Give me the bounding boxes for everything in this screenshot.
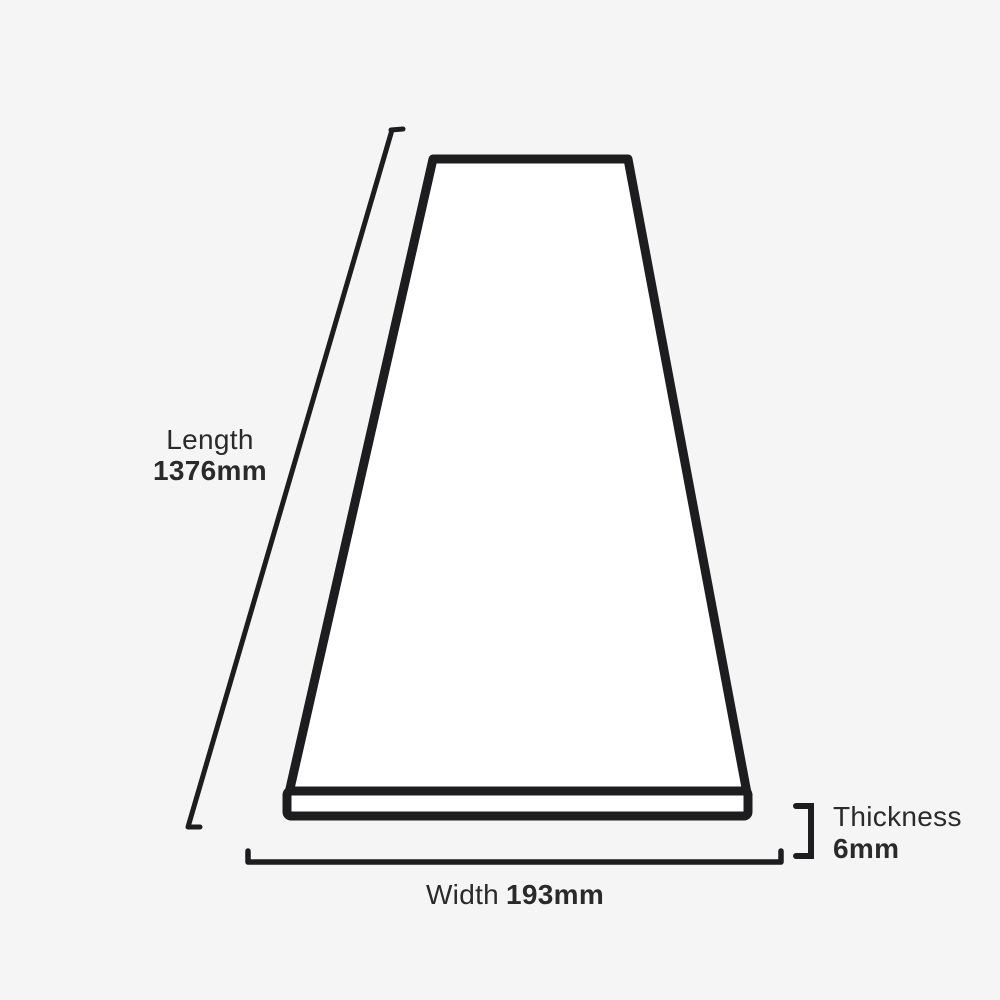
width-label-text: Width [426, 879, 499, 910]
width-dimension-line [248, 851, 781, 862]
plank-dimension-diagram: Length 1376mm Width193mm Thickness 6mm [0, 0, 1000, 1000]
length-value-text: 1376mm [90, 455, 330, 486]
length-dimension-label: Length 1376mm [90, 424, 330, 486]
width-value-text: 193mm [506, 879, 604, 910]
thickness-bracket [796, 806, 811, 856]
length-label-text: Length [90, 424, 330, 455]
thickness-value-text: 6mm [833, 833, 1000, 865]
plank-edge-face-shape [287, 791, 748, 816]
thickness-label-text: Thickness [833, 801, 1000, 833]
width-dimension-label: Width193mm [315, 879, 715, 910]
thickness-dimension-label: Thickness 6mm [833, 801, 1000, 865]
